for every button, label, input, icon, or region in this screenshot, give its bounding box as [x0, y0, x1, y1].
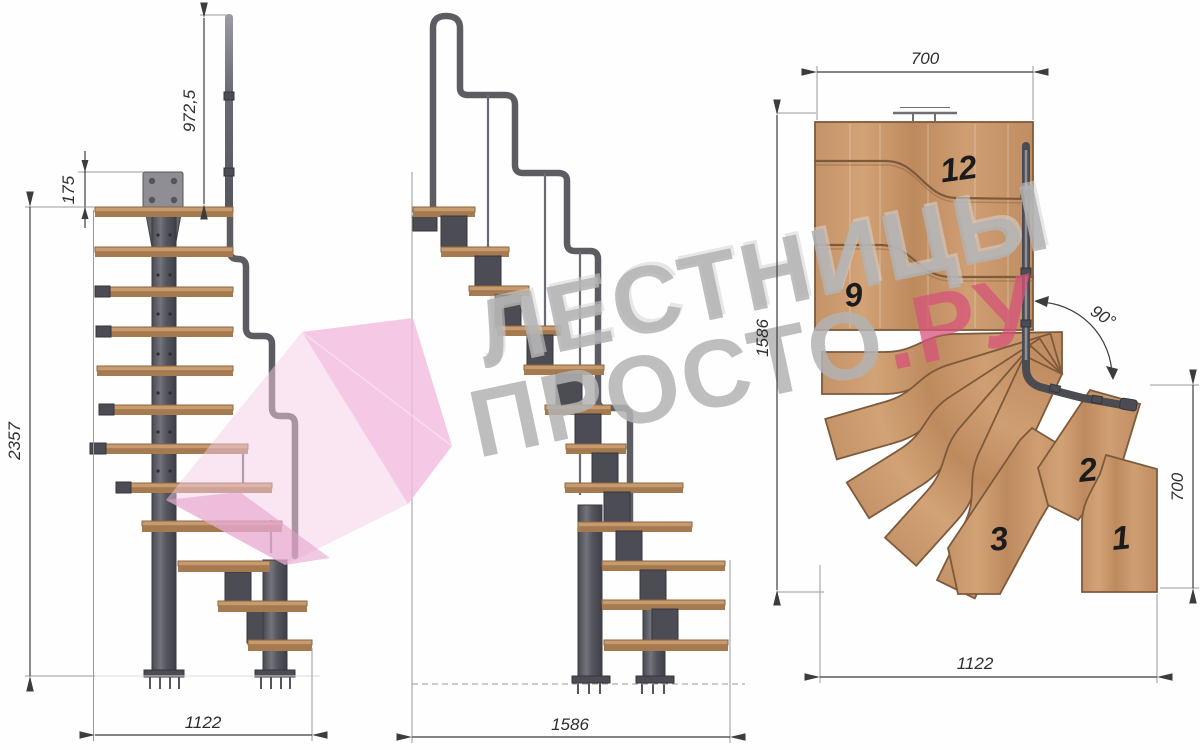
front-elevation-view	[90, 14, 320, 689]
step-module	[225, 572, 251, 604]
dim-text-1586-side: 1586	[551, 715, 589, 734]
tread	[96, 326, 233, 337]
plate-hole	[149, 178, 155, 184]
base-plate	[572, 676, 610, 683]
dim-text-700-top: 700	[911, 49, 940, 68]
plate-hole	[171, 197, 177, 203]
dim-text-1122-plan: 1122	[957, 654, 994, 673]
wall-mount-plate	[143, 172, 183, 209]
tread	[95, 286, 233, 297]
dim-total-height: 2357	[5, 207, 95, 676]
anchor-bolts	[578, 683, 664, 694]
dim-text-2357: 2357	[5, 422, 24, 461]
plate-hole	[171, 178, 177, 184]
tread	[604, 640, 728, 651]
tread	[413, 207, 475, 247]
tread	[602, 561, 725, 601]
tread	[95, 247, 233, 257]
dim-text-972-5: 972,5	[180, 89, 199, 132]
dim-handrail-height: 972,5	[180, 15, 226, 204]
tread	[178, 561, 270, 572]
tread	[99, 404, 233, 415]
dim-text-175: 175	[59, 175, 78, 204]
staircase-drawing-canvas: 12 9 3 2 1 ЛЕСТНИЦЫ ЛЕСТНИЦЫ ПРОСТО.РУ 9…	[0, 0, 1200, 750]
tread	[602, 600, 725, 640]
plate-hole	[149, 197, 155, 203]
step-number-1: 1	[1110, 518, 1132, 557]
anchor-bolts	[150, 677, 290, 689]
secondary-column	[263, 560, 287, 670]
step-number-3: 3	[988, 519, 1010, 558]
dim-text-1586-plan: 1586	[753, 319, 772, 357]
wall-bracket	[893, 108, 957, 123]
tread	[218, 601, 307, 612]
modular-staircase-blueprint: 12 9 3 2 1 ЛЕСТНИЦЫ ЛЕСТНИЦЫ ПРОСТО.РУ 9…	[0, 0, 1200, 750]
central-column	[152, 209, 176, 670]
dim-side-run: 1586	[412, 560, 730, 743]
dim-text-90deg: 90°	[1087, 301, 1119, 331]
tread	[248, 640, 312, 651]
base-plate	[636, 676, 674, 683]
handrail-post	[225, 14, 233, 210]
post-joint-sleeve	[224, 92, 234, 100]
tread	[95, 207, 233, 217]
dim-text-700-right: 700	[1168, 472, 1187, 501]
post-joint-sleeve	[224, 168, 234, 176]
dim-text-1122-front: 1122	[185, 713, 222, 732]
tread	[97, 366, 233, 376]
dim-plan-top-width: 700	[817, 49, 1033, 120]
